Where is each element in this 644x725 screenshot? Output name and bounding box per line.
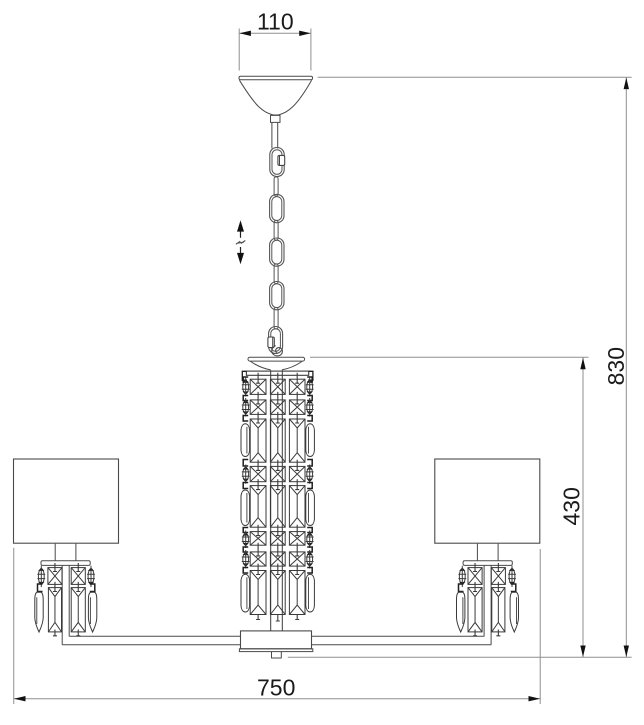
svg-text:110: 110 — [257, 9, 294, 35]
svg-text:750: 750 — [257, 675, 295, 701]
svg-text:830: 830 — [603, 347, 629, 385]
svg-text:430: 430 — [559, 487, 585, 525]
